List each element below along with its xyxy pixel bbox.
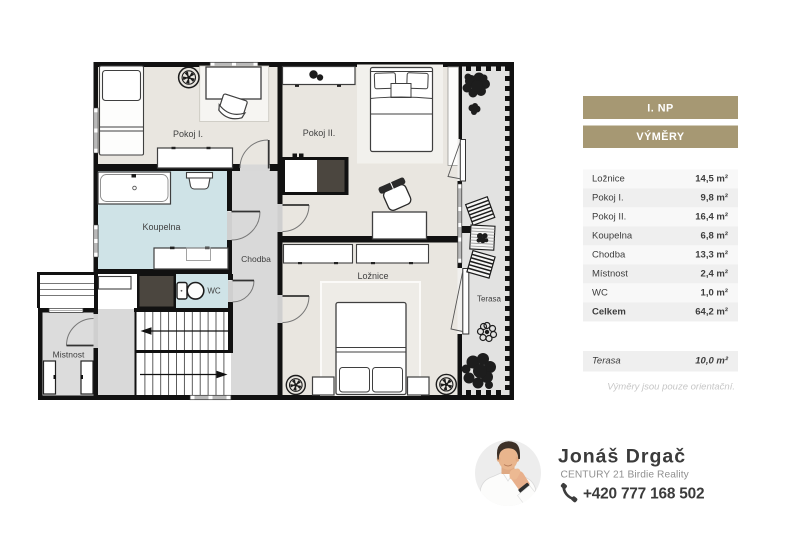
svg-text:Pokoj I.: Pokoj I. [592, 193, 624, 204]
svg-text:Koupelna: Koupelna [142, 222, 180, 232]
svg-text:Koupelna: Koupelna [592, 231, 633, 242]
svg-text:16,4 m²: 16,4 m² [695, 212, 728, 223]
svg-text:9,8 m²: 9,8 m² [701, 193, 728, 204]
svg-text:10,0 m²: 10,0 m² [695, 356, 729, 367]
svg-text:Jonáš Drgač: Jonáš Drgač [558, 446, 686, 468]
svg-text:+420 777 168 502: +420 777 168 502 [583, 486, 704, 503]
svg-text:14,5 m²: 14,5 m² [695, 174, 728, 185]
svg-text:I. NP: I. NP [647, 103, 674, 115]
svg-text:WC: WC [207, 287, 221, 296]
svg-text:Ložnice: Ložnice [592, 174, 625, 185]
svg-text:Mistnost: Mistnost [53, 350, 85, 360]
svg-text:Místnost: Místnost [592, 269, 628, 280]
svg-text:Pokoj I.: Pokoj I. [173, 129, 203, 139]
svg-text:6,8 m²: 6,8 m² [701, 231, 728, 242]
svg-text:VÝMĚRY: VÝMĚRY [636, 130, 684, 143]
svg-text:Pokoj II.: Pokoj II. [303, 128, 336, 138]
svg-text:13,3 m²: 13,3 m² [695, 250, 728, 261]
svg-text:Výměry jsou pouze orientační.: Výměry jsou pouze orientační. [607, 382, 735, 393]
svg-text:1,0 m²: 1,0 m² [701, 288, 728, 299]
svg-text:Terasa: Terasa [477, 295, 502, 304]
svg-text:2,4 m²: 2,4 m² [701, 269, 728, 280]
svg-text:Terasa: Terasa [592, 356, 621, 367]
svg-text:CENTURY 21 Birdie Reality: CENTURY 21 Birdie Reality [561, 470, 690, 481]
svg-text:WC: WC [592, 288, 608, 299]
svg-text:Ložnice: Ložnice [357, 271, 388, 281]
svg-text:64,2 m²: 64,2 m² [695, 307, 728, 318]
svg-text:Chodba: Chodba [241, 254, 271, 264]
svg-text:Chodba: Chodba [592, 250, 626, 261]
svg-text:Pokoj II.: Pokoj II. [592, 212, 626, 223]
svg-text:Celkem: Celkem [592, 307, 626, 318]
